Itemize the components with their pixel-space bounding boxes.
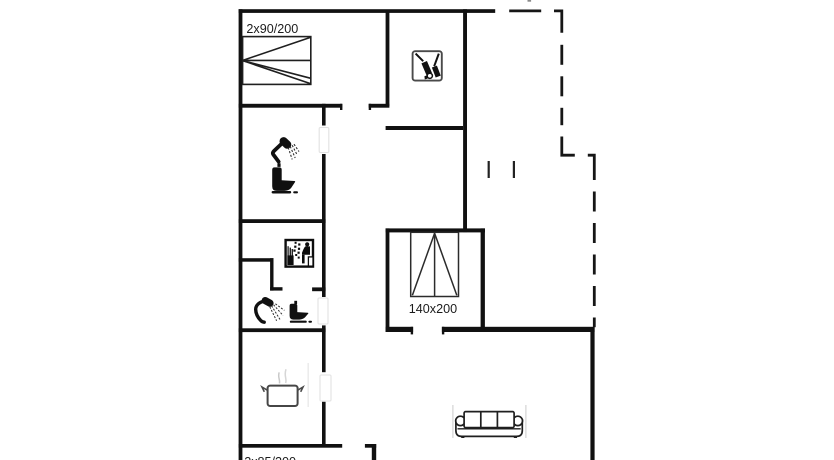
svg-text:2x85/200: 2x85/200 xyxy=(244,455,296,460)
svg-text:2x90/200: 2x90/200 xyxy=(246,22,298,36)
svg-text:140x200: 140x200 xyxy=(409,302,457,316)
